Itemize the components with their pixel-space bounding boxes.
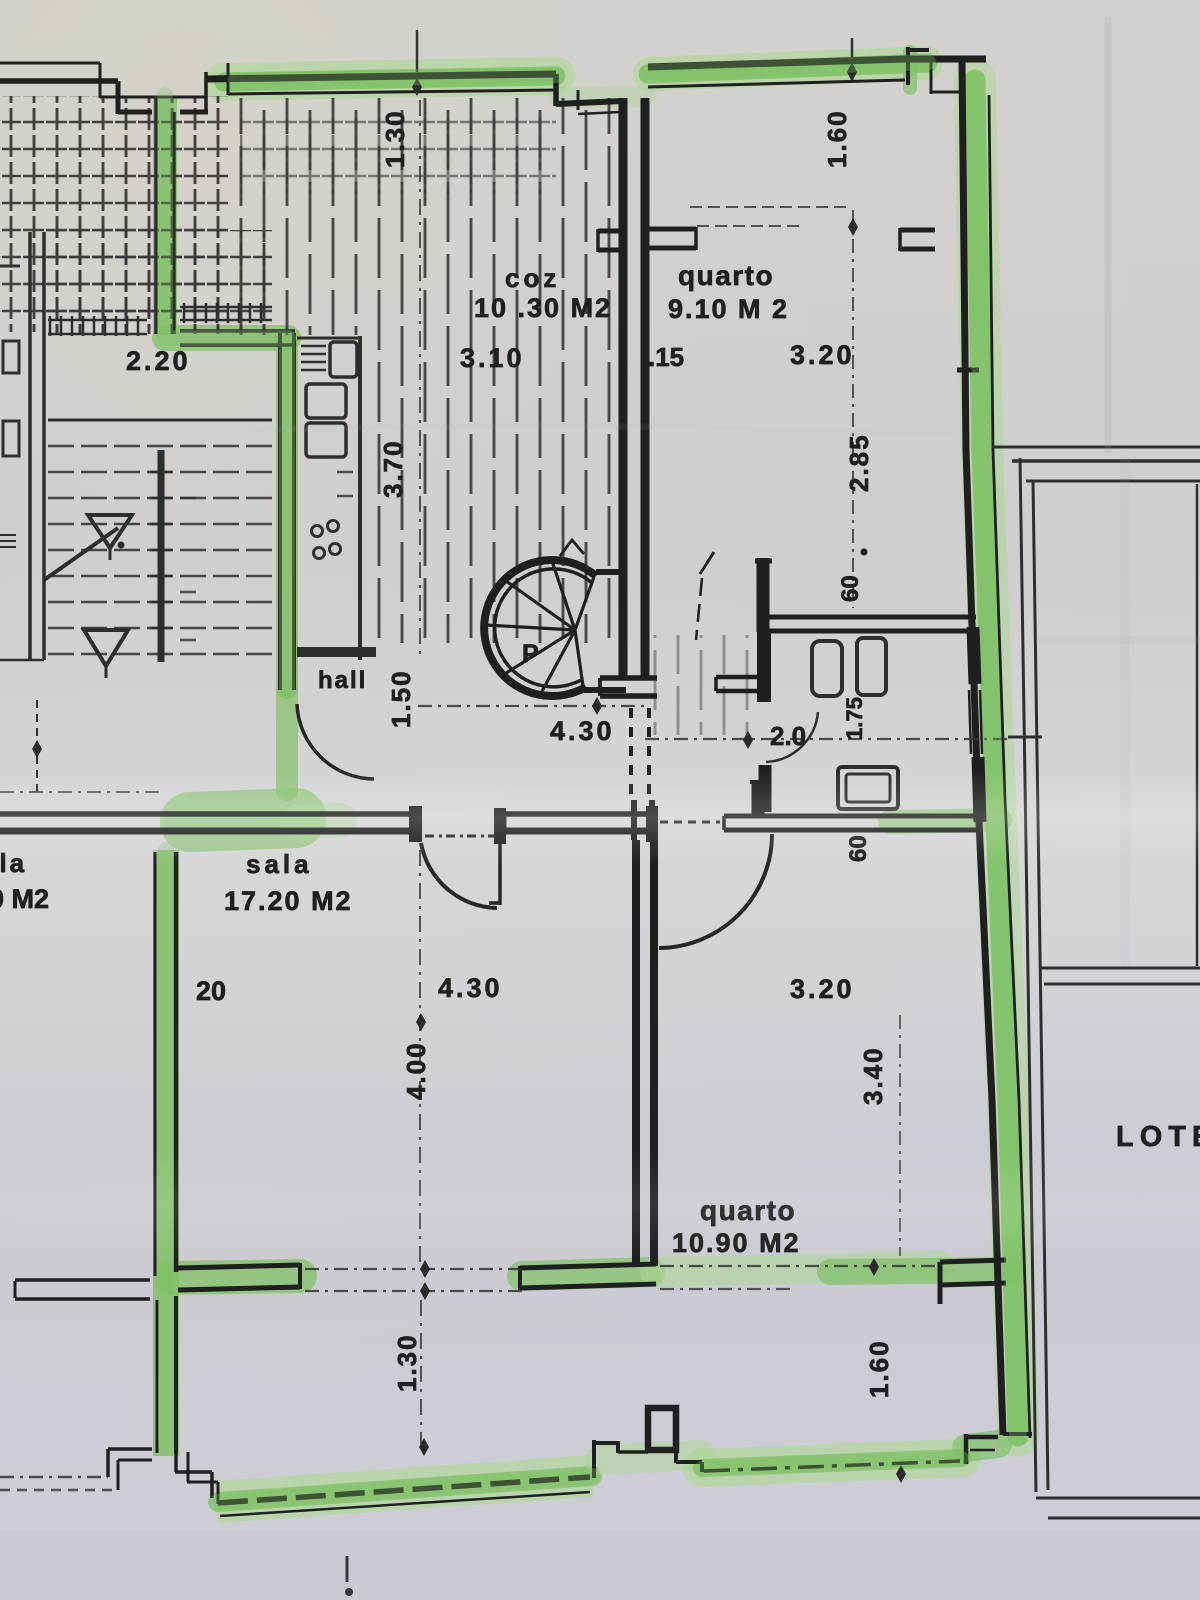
svg-text:4.30: 4.30: [550, 716, 615, 746]
svg-text:4.00: 4.00: [401, 1041, 431, 1100]
svg-text:9.10 M 2: 9.10 M 2: [668, 294, 789, 324]
svg-text:2.20: 2.20: [126, 346, 191, 376]
svg-text:17.20 M2: 17.20 M2: [224, 886, 353, 916]
svg-text:2.85: 2.85: [844, 433, 874, 492]
svg-text:60: 60: [837, 575, 864, 602]
svg-text:3.10: 3.10: [460, 343, 525, 373]
svg-text:hall: hall: [318, 667, 367, 694]
svg-text:P: P: [522, 640, 539, 668]
svg-text:1.50: 1.50: [386, 669, 416, 728]
svg-text:1.60: 1.60: [864, 1339, 894, 1398]
svg-text:3.20: 3.20: [790, 974, 855, 1004]
svg-text:LOTE: LOTE: [1116, 1121, 1200, 1153]
svg-text:3.40: 3.40: [858, 1046, 888, 1105]
svg-text:20: 20: [196, 976, 226, 1006]
svg-text:1.75: 1.75: [842, 697, 867, 740]
svg-text:1.30: 1.30: [380, 109, 410, 168]
svg-text:3.20: 3.20: [790, 340, 855, 370]
svg-text:2.0: 2.0: [770, 721, 806, 751]
svg-text:quarto: quarto: [678, 260, 774, 291]
svg-text:4.30: 4.30: [438, 973, 503, 1003]
svg-text:10 .30 M2: 10 .30 M2: [474, 293, 612, 323]
svg-text:coz: coz: [505, 263, 560, 293]
svg-text:1.30: 1.30: [392, 1333, 422, 1392]
svg-text:3.70: 3.70: [378, 439, 408, 498]
svg-text:1.60: 1.60: [822, 109, 852, 168]
svg-text:.15: .15: [648, 342, 684, 372]
svg-text:90 M2: 90 M2: [0, 884, 49, 914]
